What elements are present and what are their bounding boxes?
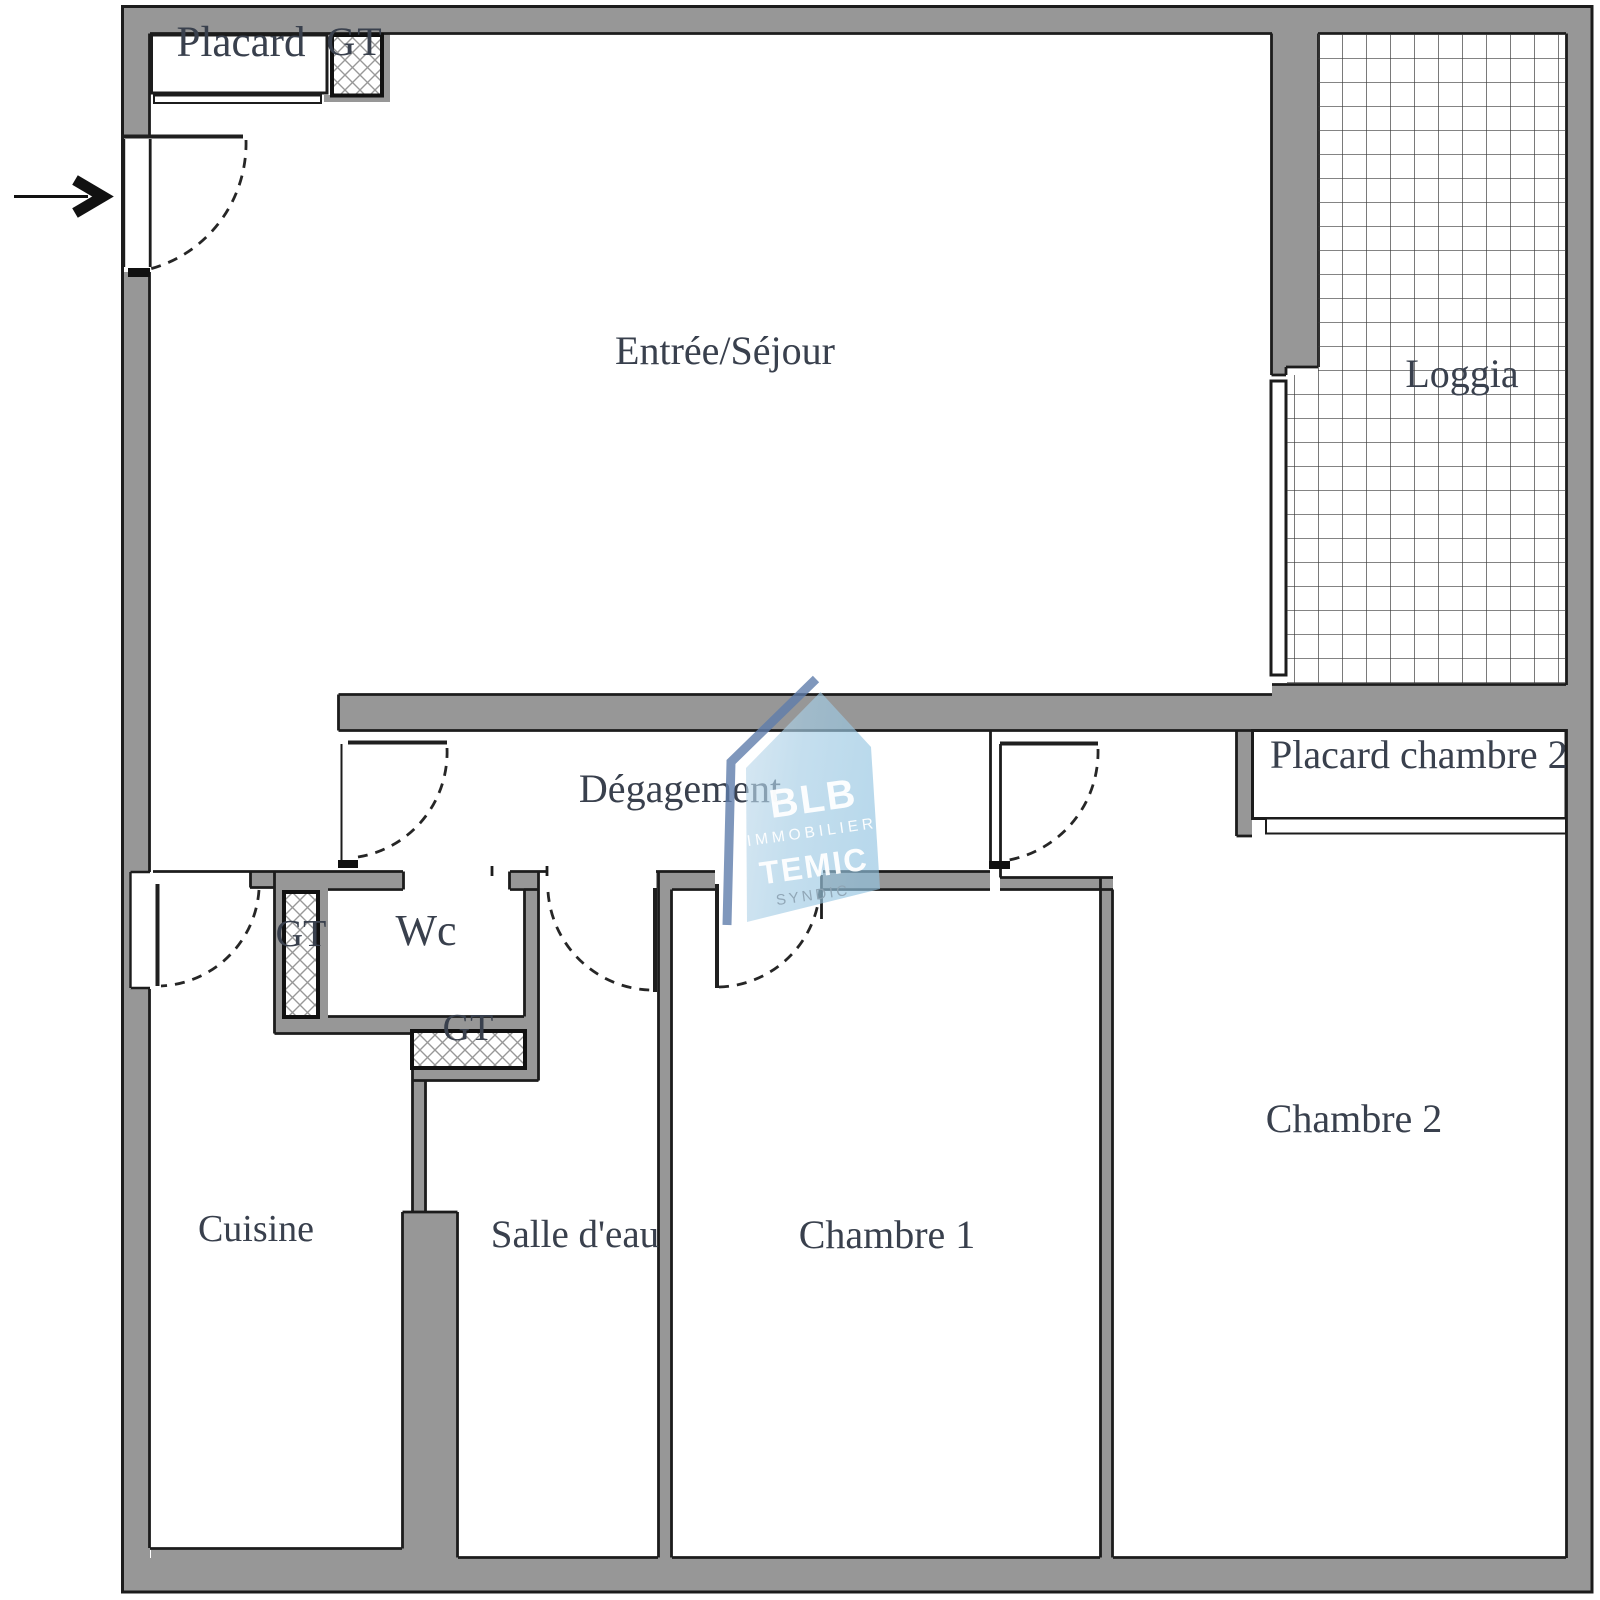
svg-text:Entrée/Séjour: Entrée/Séjour bbox=[615, 328, 835, 373]
svg-text:GT: GT bbox=[443, 1007, 494, 1049]
svg-text:Wc: Wc bbox=[395, 906, 456, 955]
svg-text:Chambre 1: Chambre 1 bbox=[799, 1212, 976, 1257]
svg-text:Placard: Placard bbox=[177, 19, 306, 66]
svg-text:Loggia: Loggia bbox=[1405, 351, 1519, 396]
svg-text:Placard chambre 2: Placard chambre 2 bbox=[1270, 732, 1568, 777]
svg-text:Chambre 2: Chambre 2 bbox=[1266, 1096, 1443, 1141]
svg-text:Salle d'eau: Salle d'eau bbox=[491, 1213, 659, 1256]
svg-text:GT: GT bbox=[326, 19, 383, 64]
svg-text:GT: GT bbox=[276, 913, 327, 955]
svg-text:Cuisine: Cuisine bbox=[198, 1208, 314, 1250]
